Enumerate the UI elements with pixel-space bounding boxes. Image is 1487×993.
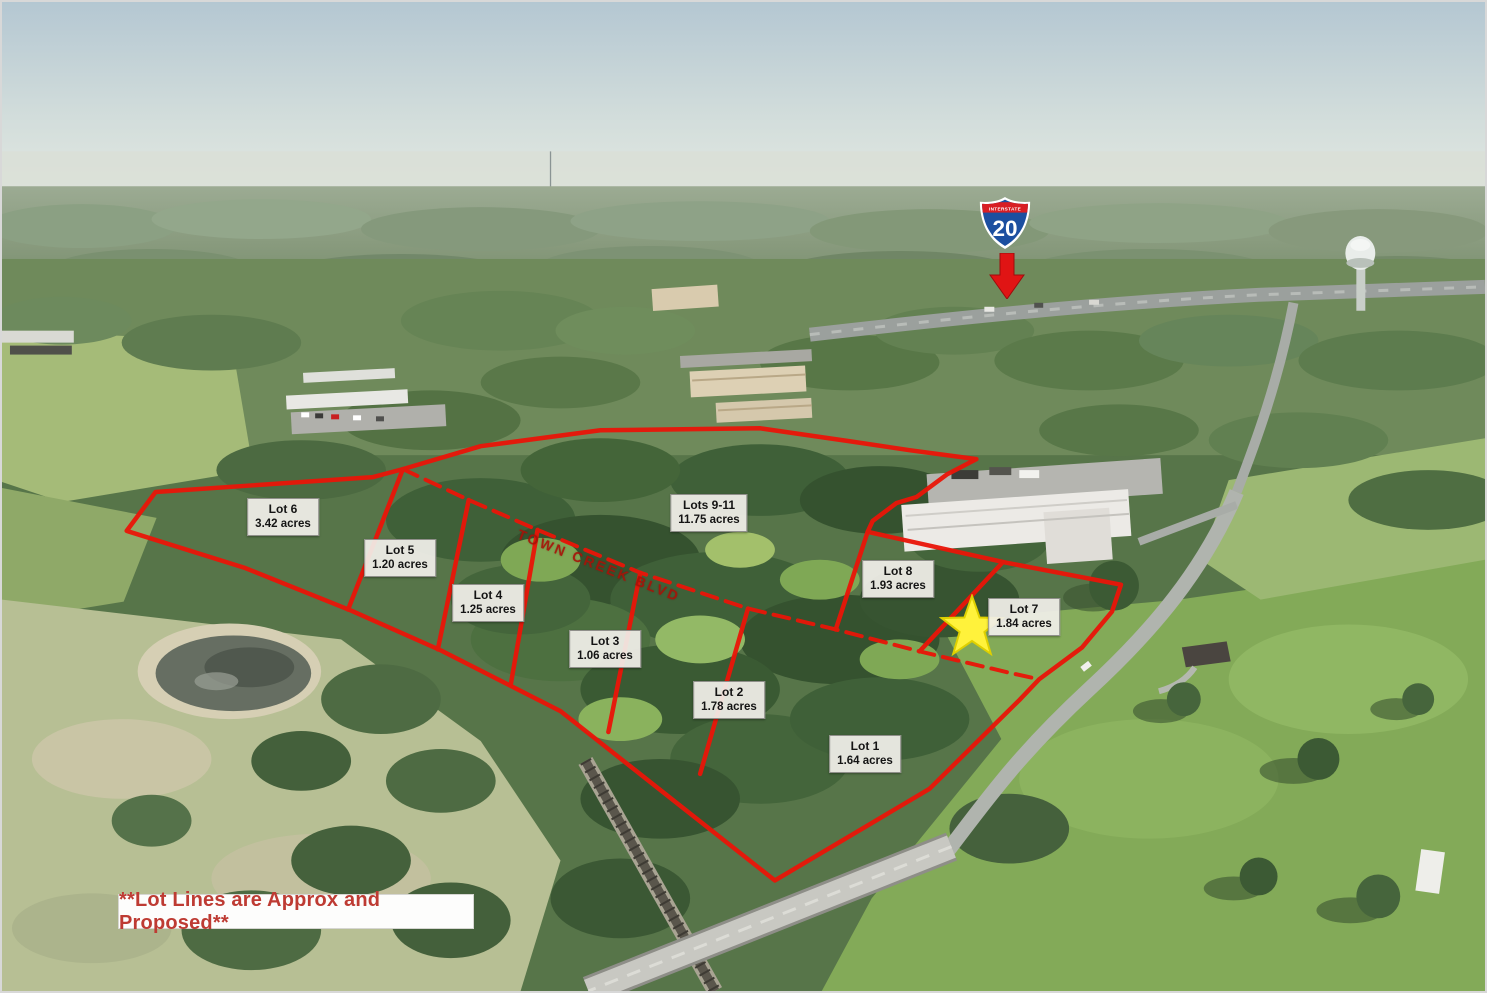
- shield-route-number: 20: [992, 216, 1017, 241]
- lot-name: Lot 8: [870, 564, 926, 579]
- lot-acreage: 1.20 acres: [372, 558, 428, 573]
- lot-acreage: 1.25 acres: [460, 603, 516, 618]
- lot-acreage: 1.06 acres: [577, 649, 633, 664]
- lot-acreage: 1.64 acres: [837, 754, 893, 769]
- aerial-lot-map: INTERSTATE 20 TOWN CREEK BLVD Lot 6 3.42…: [0, 0, 1487, 993]
- lot-name: Lot 4: [460, 588, 516, 603]
- disclaimer-text: **Lot Lines are Approx and Proposed**: [119, 889, 473, 935]
- lot-acreage: 1.93 acres: [870, 579, 926, 594]
- lot-label-lot7: Lot 7 1.84 acres: [988, 598, 1060, 636]
- lot-name: Lot 2: [701, 685, 757, 700]
- lot-acreage: 1.84 acres: [996, 617, 1052, 632]
- interstate-shield-graphic: INTERSTATE 20: [979, 196, 1031, 250]
- lot-name: Lot 7: [996, 602, 1052, 617]
- lot-label-lot6: Lot 6 3.42 acres: [247, 498, 319, 536]
- lot-label-lot5: Lot 5 1.20 acres: [364, 539, 436, 577]
- pond: [138, 623, 322, 719]
- lot-acreage: 3.42 acres: [255, 517, 311, 532]
- disclaimer-banner: **Lot Lines are Approx and Proposed**: [118, 894, 474, 929]
- location-arrow-icon: [987, 253, 1027, 299]
- lot-acreage: 11.75 acres: [678, 513, 739, 528]
- lot-label-lot4: Lot 4 1.25 acres: [452, 584, 524, 622]
- lot-name: Lot 1: [837, 739, 893, 754]
- lot-label-lots9-11: Lots 9-11 11.75 acres: [670, 494, 747, 532]
- lot-label-lot2: Lot 2 1.78 acres: [693, 681, 765, 719]
- lot-name: Lot 3: [577, 634, 633, 649]
- lot-label-lot8: Lot 8 1.93 acres: [862, 560, 934, 598]
- lot-name: Lot 6: [255, 502, 311, 517]
- lot-label-lot1: Lot 1 1.64 acres: [829, 735, 901, 773]
- lot-name: Lots 9-11: [678, 498, 739, 513]
- lot-acreage: 1.78 acres: [701, 700, 757, 715]
- shield-top-label: INTERSTATE: [989, 206, 1021, 211]
- lot-label-lot3: Lot 3 1.06 acres: [569, 630, 641, 668]
- interstate-20-shield: INTERSTATE 20: [979, 196, 1031, 250]
- lot-name: Lot 5: [372, 543, 428, 558]
